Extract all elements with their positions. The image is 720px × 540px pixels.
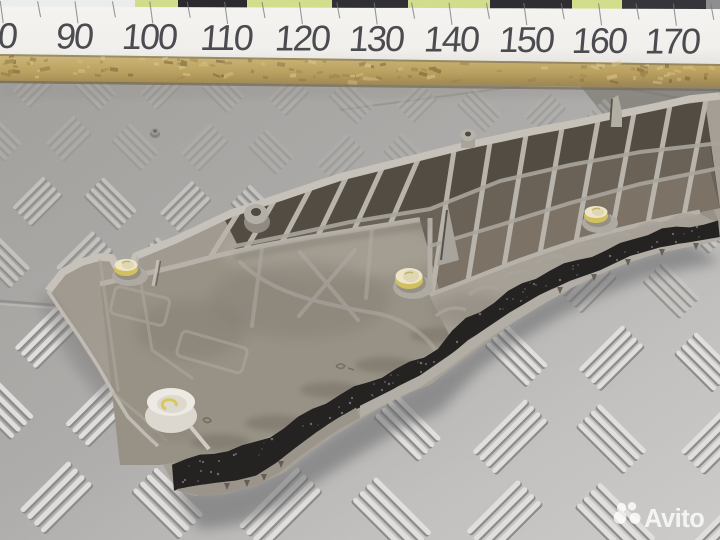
svg-text:Avito: Avito — [644, 505, 704, 533]
svg-text:120: 120 — [273, 17, 332, 58]
svg-text:170: 170 — [643, 20, 702, 61]
svg-text:160: 160 — [570, 20, 629, 61]
svg-text:150: 150 — [497, 19, 556, 60]
svg-text:130: 130 — [347, 18, 406, 59]
svg-text:100: 100 — [120, 16, 179, 57]
svg-text:140: 140 — [422, 19, 481, 60]
svg-text:90: 90 — [54, 16, 95, 57]
svg-text:110: 110 — [199, 17, 255, 58]
